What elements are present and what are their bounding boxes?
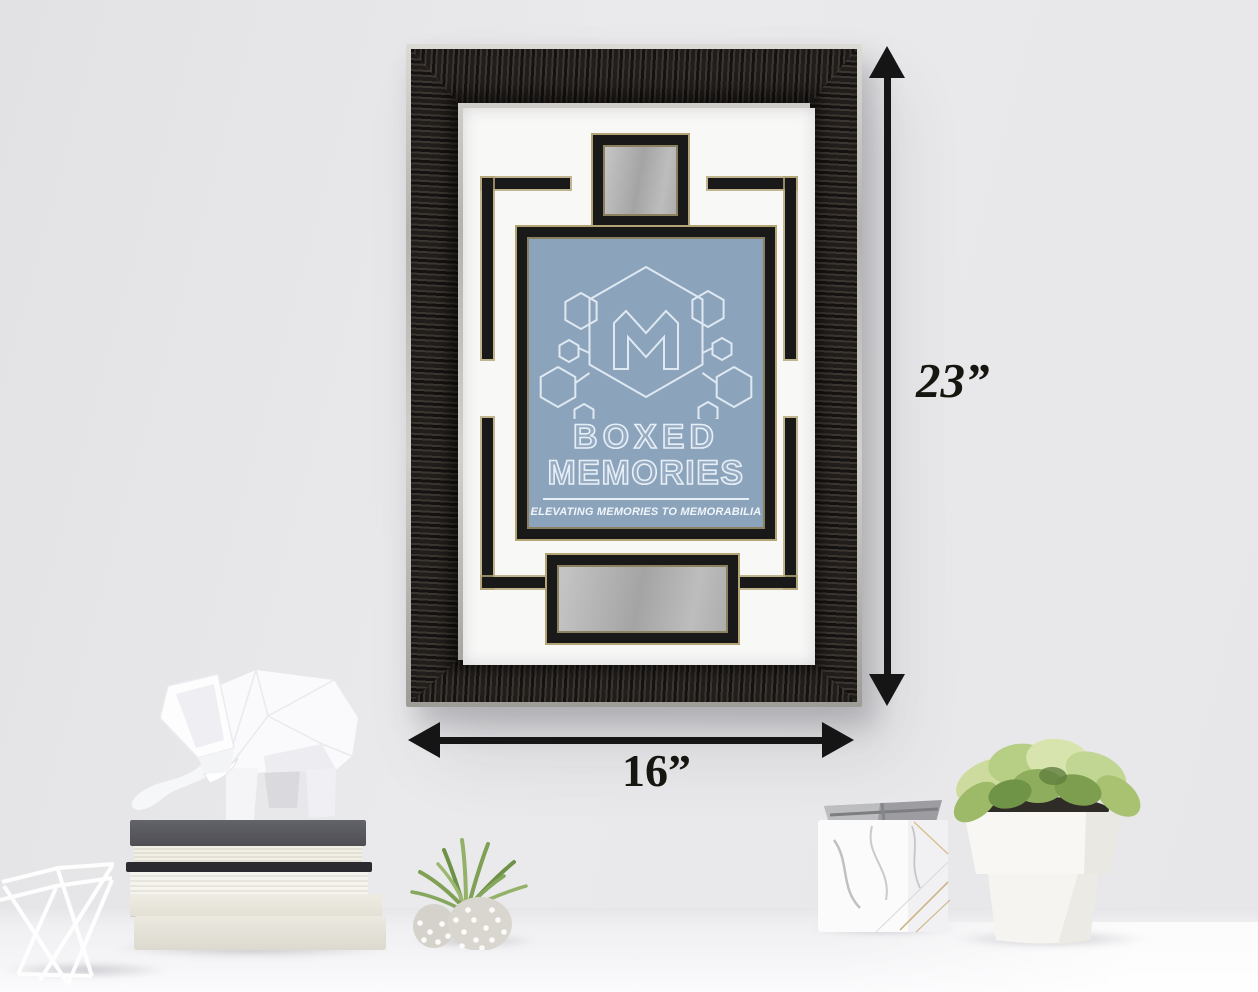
hexagon-logo-icon — [529, 243, 763, 419]
frame-mat: BOXED MEMORIES ELEVATING MEMORIES TO MEM… — [463, 108, 815, 665]
book-third — [130, 894, 382, 916]
book-bottom — [134, 916, 386, 950]
frame-wood: BOXED MEMORIES ELEVATING MEMORIES TO MEM… — [411, 49, 857, 702]
height-dimension-label: 23” — [916, 352, 990, 409]
arrowhead-right-icon — [822, 722, 854, 758]
brand-line-2: MEMORIES — [529, 455, 763, 491]
arrowhead-left-icon — [408, 722, 440, 758]
potted-plant — [918, 726, 1162, 948]
brand-tagline: ELEVATING MEMORIES TO MEMORABILIA — [529, 506, 763, 518]
brand-rule — [543, 498, 749, 500]
frame-wood-bottom — [411, 660, 857, 702]
logo-print: BOXED MEMORIES ELEVATING MEMORIES TO MEM… — [529, 239, 763, 527]
top-metal-plate — [605, 147, 676, 214]
picture-frame: BOXED MEMORIES ELEVATING MEMORIES TO MEM… — [406, 44, 862, 707]
height-dimension-arrow — [869, 46, 905, 706]
mat-accent-line-tr-v — [785, 178, 796, 359]
bottom-metal-plate — [559, 567, 726, 631]
book-second-pages — [130, 872, 368, 894]
book-stack — [118, 818, 388, 952]
air-plant — [402, 828, 542, 950]
elephant-figurine — [106, 658, 386, 824]
arrowhead-up-icon — [869, 46, 905, 78]
mat-accent-line-tl-v — [482, 178, 493, 359]
arrowhead-down-icon — [869, 674, 905, 706]
frame-wood-top — [411, 49, 857, 103]
bottom-plate-opening — [547, 555, 738, 643]
room-scene: BOXED MEMORIES ELEVATING MEMORIES TO MEM… — [0, 0, 1258, 992]
mat-accent-line-bl-v — [482, 418, 493, 588]
mat-accent-line-tr-h — [708, 178, 796, 189]
book-second-cover — [126, 862, 372, 872]
print-opening: BOXED MEMORIES ELEVATING MEMORIES TO MEM… — [517, 227, 775, 539]
width-dimension-label: 16” — [622, 744, 691, 797]
mat-accent-line-br-v — [785, 418, 796, 588]
frame-wood-right — [810, 49, 857, 702]
mat-accent-line-tl-h — [482, 178, 570, 189]
frame-wood-left — [411, 49, 458, 702]
book-top-pages — [134, 846, 362, 862]
top-plate-opening — [593, 135, 688, 226]
brand-line-1: BOXED — [529, 419, 763, 455]
